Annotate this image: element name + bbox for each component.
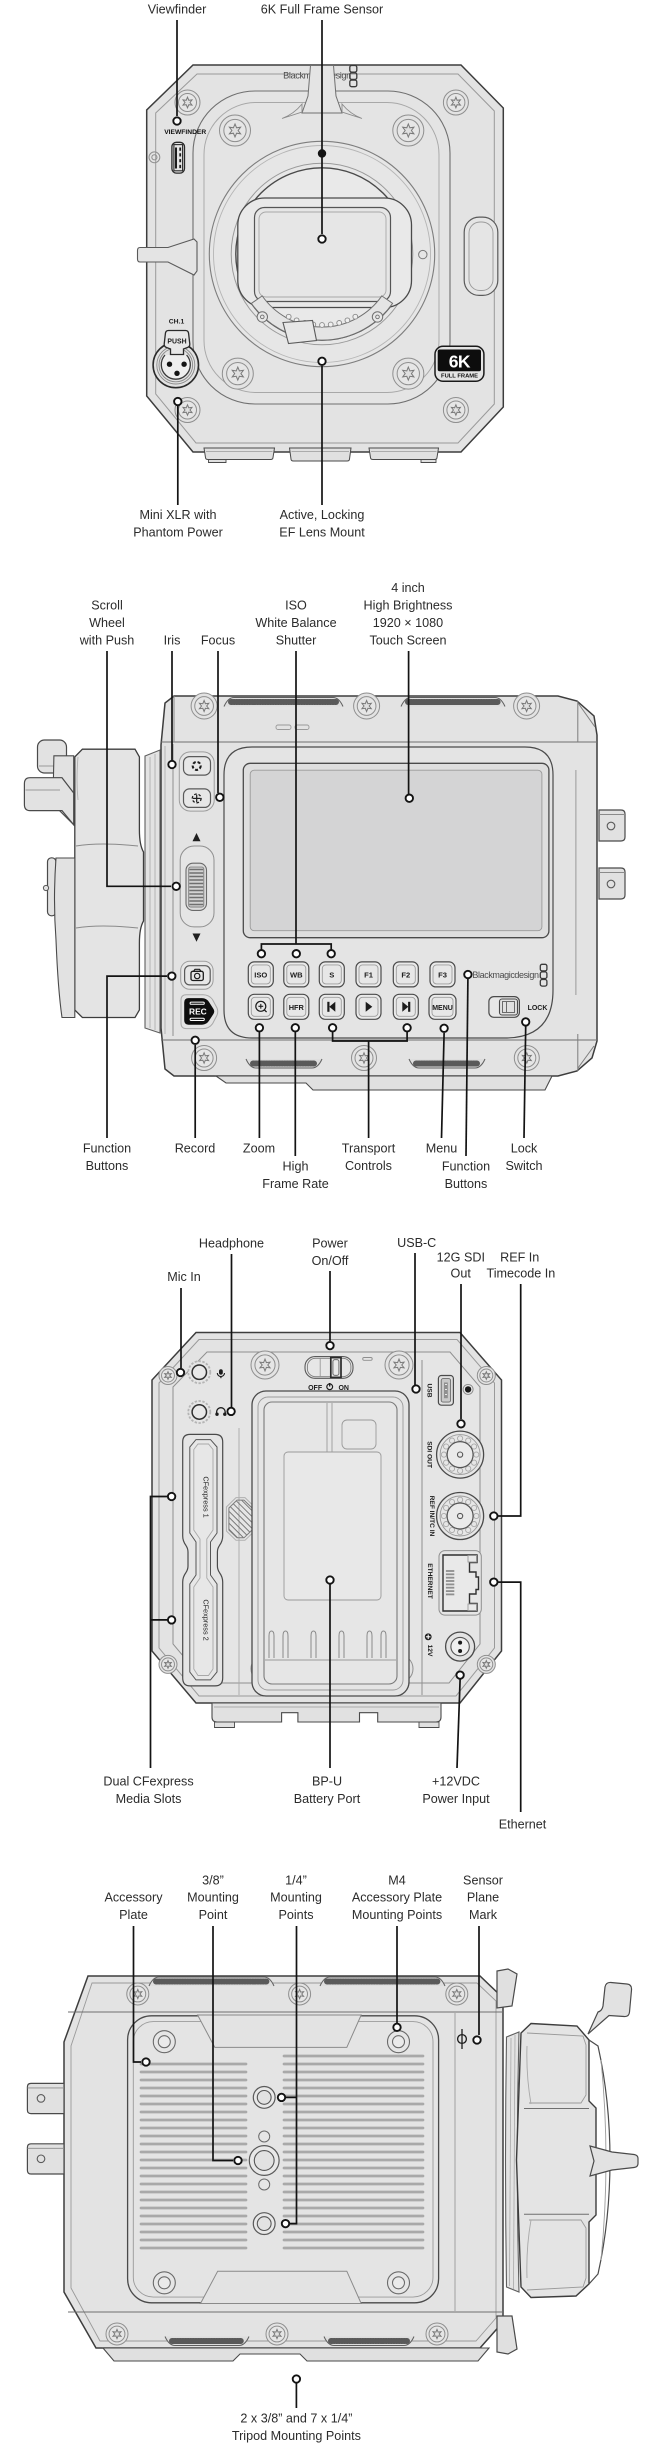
svg-text:Accessory: Accessory: [104, 1891, 163, 1905]
svg-text:Timecode In: Timecode In: [486, 1267, 555, 1281]
svg-text:Tripod Mounting Points: Tripod Mounting Points: [232, 2429, 361, 2443]
svg-text:WB: WB: [290, 971, 303, 980]
svg-text:Lock: Lock: [511, 1142, 538, 1156]
svg-text:Controls: Controls: [345, 1159, 392, 1173]
svg-text:Focus: Focus: [201, 634, 235, 648]
svg-text:On/Off: On/Off: [312, 1254, 349, 1268]
svg-text:with Push: with Push: [79, 634, 135, 648]
svg-text:MENU: MENU: [432, 1005, 453, 1012]
svg-text:F1: F1: [364, 971, 374, 980]
svg-text:4 inch: 4 inch: [391, 581, 425, 595]
svg-text:CFexpress 2: CFexpress 2: [202, 1599, 211, 1640]
svg-text:Mounting: Mounting: [270, 1891, 322, 1905]
svg-text:Function: Function: [83, 1142, 131, 1156]
svg-text:PUSH: PUSH: [167, 339, 186, 346]
svg-text:Power: Power: [312, 1237, 348, 1251]
svg-text:Plane: Plane: [467, 1891, 499, 1905]
svg-text:Mark: Mark: [469, 1908, 498, 1922]
svg-text:Headphone: Headphone: [199, 1237, 264, 1251]
svg-text:Viewfinder: Viewfinder: [148, 3, 207, 17]
svg-text:ISO: ISO: [254, 971, 267, 980]
svg-text:Wheel: Wheel: [89, 616, 125, 630]
svg-text:12G SDI: 12G SDI: [437, 1250, 485, 1264]
svg-text:Scroll: Scroll: [91, 599, 123, 613]
svg-text:Buttons: Buttons: [86, 1159, 129, 1173]
svg-text:Accessory Plate: Accessory Plate: [352, 1891, 442, 1905]
svg-text:White Balance: White Balance: [255, 616, 336, 630]
svg-text:Mini XLR with: Mini XLR with: [140, 508, 217, 522]
svg-text:Plate: Plate: [119, 1908, 148, 1922]
svg-text:Buttons: Buttons: [445, 1177, 488, 1191]
svg-text:Blackmagicdesign: Blackmagicdesign: [472, 970, 539, 980]
svg-text:SDI OUT: SDI OUT: [426, 1441, 433, 1468]
svg-text:1/4”: 1/4”: [285, 1874, 307, 1888]
svg-text:EF Lens Mount: EF Lens Mount: [279, 526, 365, 540]
svg-text:Frame Rate: Frame Rate: [262, 1177, 329, 1191]
svg-text:VIEWFINDER: VIEWFINDER: [164, 129, 206, 136]
svg-text:Zoom: Zoom: [243, 1142, 275, 1156]
svg-text:BP-U: BP-U: [312, 1775, 342, 1789]
svg-text:HFR: HFR: [289, 1003, 305, 1012]
svg-text:Active, Locking: Active, Locking: [280, 508, 365, 522]
svg-text:Mounting: Mounting: [187, 1891, 239, 1905]
svg-text:REC: REC: [189, 1006, 207, 1016]
svg-text:1920 × 1080: 1920 × 1080: [373, 616, 443, 630]
svg-text:M4: M4: [388, 1874, 406, 1888]
svg-text:ISO: ISO: [285, 599, 307, 613]
svg-text:Iris: Iris: [164, 634, 181, 648]
svg-text:Shutter: Shutter: [276, 634, 317, 648]
svg-text:2 x 3/8” and 7 x 1/4”: 2 x 3/8” and 7 x 1/4”: [240, 2412, 352, 2426]
svg-text:Battery Port: Battery Port: [294, 1792, 361, 1806]
svg-text:CH.1: CH.1: [169, 319, 185, 326]
svg-text:Touch Screen: Touch Screen: [369, 634, 446, 648]
svg-text:Switch: Switch: [505, 1159, 542, 1173]
svg-text:S: S: [329, 971, 334, 980]
svg-text:High: High: [283, 1160, 309, 1174]
svg-text:Point: Point: [199, 1908, 228, 1922]
svg-text:6K: 6K: [449, 351, 471, 371]
svg-text:Media Slots: Media Slots: [116, 1792, 182, 1806]
svg-text:REF IN/TC IN: REF IN/TC IN: [428, 1496, 435, 1537]
svg-text:Menu: Menu: [426, 1142, 458, 1156]
svg-text:F2: F2: [401, 971, 410, 980]
svg-text:USB-C: USB-C: [397, 1236, 436, 1250]
svg-text:Dual CFexpress: Dual CFexpress: [103, 1775, 193, 1789]
svg-text:3/8”: 3/8”: [202, 1874, 224, 1888]
svg-text:6K Full Frame Sensor: 6K Full Frame Sensor: [261, 3, 383, 17]
svg-text:12V: 12V: [426, 1645, 433, 1657]
svg-text:LOCK: LOCK: [528, 1005, 548, 1012]
svg-text:USB: USB: [426, 1384, 433, 1398]
svg-text:Out: Out: [451, 1266, 472, 1280]
svg-text:Points: Points: [278, 1908, 313, 1922]
svg-text:Function: Function: [442, 1160, 490, 1174]
svg-text:FULL FRAME: FULL FRAME: [441, 373, 478, 379]
svg-text:Phantom Power: Phantom Power: [133, 526, 223, 540]
svg-text:+12VDC: +12VDC: [432, 1775, 480, 1789]
svg-text:Mic In: Mic In: [167, 1270, 201, 1284]
svg-text:ETHERNET: ETHERNET: [426, 1563, 433, 1599]
svg-text:F3: F3: [438, 971, 447, 980]
svg-text:High Brightness: High Brightness: [364, 599, 453, 613]
svg-text:Record: Record: [175, 1142, 216, 1156]
svg-text:Ethernet: Ethernet: [499, 1818, 547, 1832]
svg-text:CFexpress 1: CFexpress 1: [202, 1476, 211, 1517]
svg-text:Mounting Points: Mounting Points: [352, 1908, 442, 1922]
svg-text:REF In: REF In: [500, 1250, 539, 1264]
svg-text:Transport: Transport: [342, 1142, 396, 1156]
svg-text:Power Input: Power Input: [422, 1792, 490, 1806]
svg-text:Sensor: Sensor: [463, 1874, 503, 1888]
